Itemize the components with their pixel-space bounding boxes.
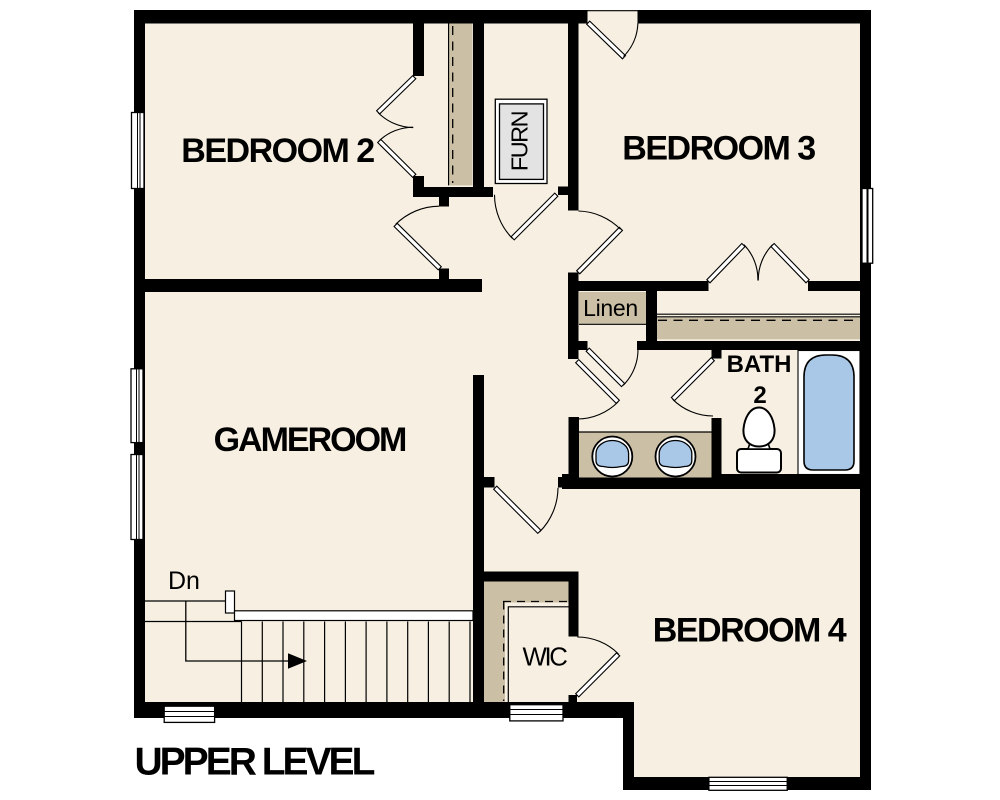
svg-text:GAMEROOM: GAMEROOM	[214, 421, 406, 459]
svg-text:BEDROOM 4: BEDROOM 4	[653, 612, 847, 650]
svg-text:BEDROOM 2: BEDROOM 2	[181, 132, 374, 170]
svg-text:2: 2	[753, 382, 766, 409]
svg-text:Linen: Linen	[583, 295, 638, 321]
svg-text:WIC: WIC	[523, 644, 568, 672]
svg-text:FURN: FURN	[507, 111, 533, 171]
svg-text:BATH: BATH	[727, 351, 792, 378]
svg-text:UPPER LEVEL: UPPER LEVEL	[135, 741, 375, 784]
svg-text:BEDROOM 3: BEDROOM 3	[622, 130, 815, 168]
svg-text:Dn: Dn	[168, 567, 200, 595]
